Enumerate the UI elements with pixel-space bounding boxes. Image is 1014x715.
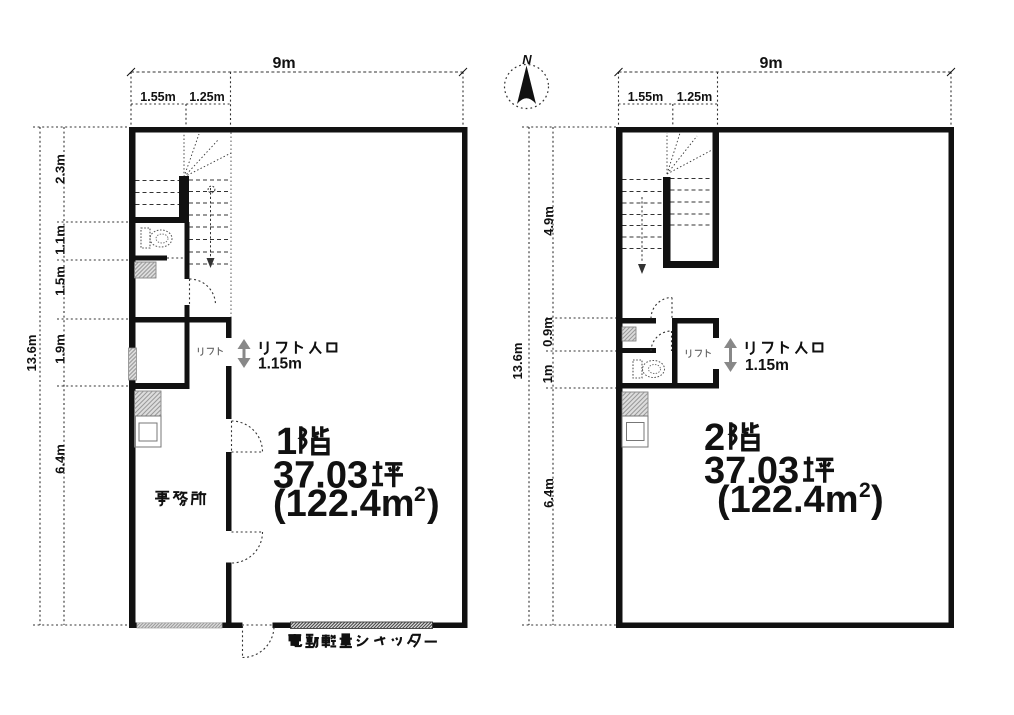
svg-text:1.9m: 1.9m — [53, 334, 68, 364]
svg-text:1m: 1m — [540, 365, 555, 384]
svg-text:1.25m: 1.25m — [189, 90, 224, 104]
svg-text:): ) — [427, 483, 440, 525]
svg-text:1.1m: 1.1m — [53, 225, 68, 255]
svg-text:9m: 9m — [272, 55, 295, 72]
svg-text:0.9m: 0.9m — [540, 317, 555, 347]
svg-text:9m: 9m — [759, 55, 782, 72]
svg-text:1.5m: 1.5m — [53, 266, 68, 296]
svg-text:2: 2 — [414, 483, 426, 506]
svg-text:N: N — [522, 52, 532, 67]
svg-text:6.4m: 6.4m — [53, 444, 68, 474]
svg-text:): ) — [871, 479, 884, 521]
svg-text:1.55m: 1.55m — [628, 90, 663, 104]
svg-text:1.15m: 1.15m — [745, 357, 789, 374]
svg-text:1.25m: 1.25m — [677, 90, 712, 104]
svg-text:13.6m: 13.6m — [24, 335, 39, 372]
svg-text:1.15m: 1.15m — [258, 356, 302, 373]
svg-text:(122.4m: (122.4m — [717, 479, 859, 521]
svg-text:(122.4m: (122.4m — [273, 483, 415, 525]
svg-text:4.9m: 4.9m — [541, 206, 556, 236]
svg-text:13.6m: 13.6m — [510, 343, 525, 380]
svg-text:2.3m: 2.3m — [53, 154, 68, 184]
svg-text:1.55m: 1.55m — [140, 90, 175, 104]
svg-text:2: 2 — [859, 479, 871, 502]
svg-text:6.4m: 6.4m — [541, 478, 556, 508]
